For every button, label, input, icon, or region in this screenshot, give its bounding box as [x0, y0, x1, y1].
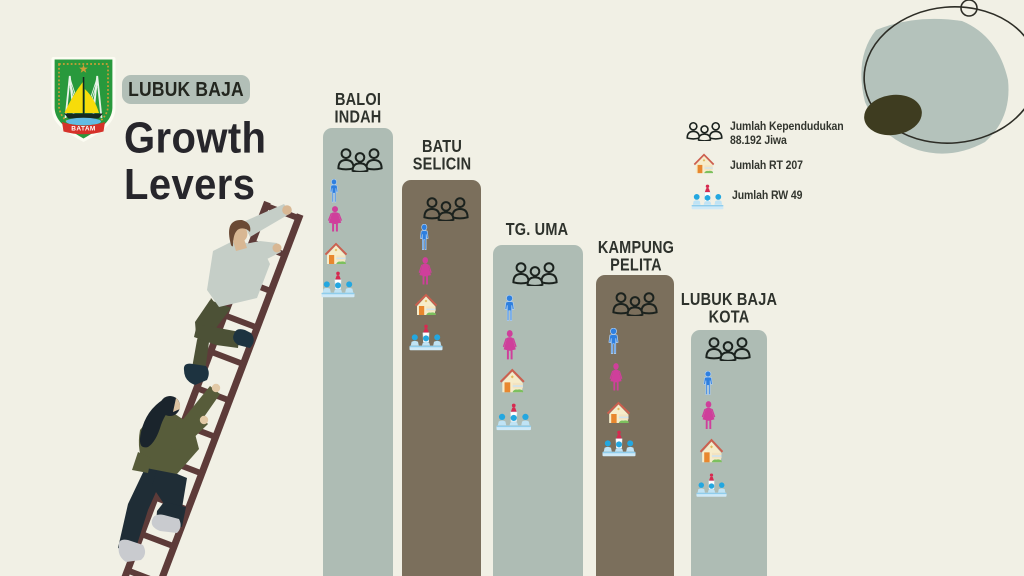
svg-text:BATAM: BATAM: [71, 126, 96, 133]
